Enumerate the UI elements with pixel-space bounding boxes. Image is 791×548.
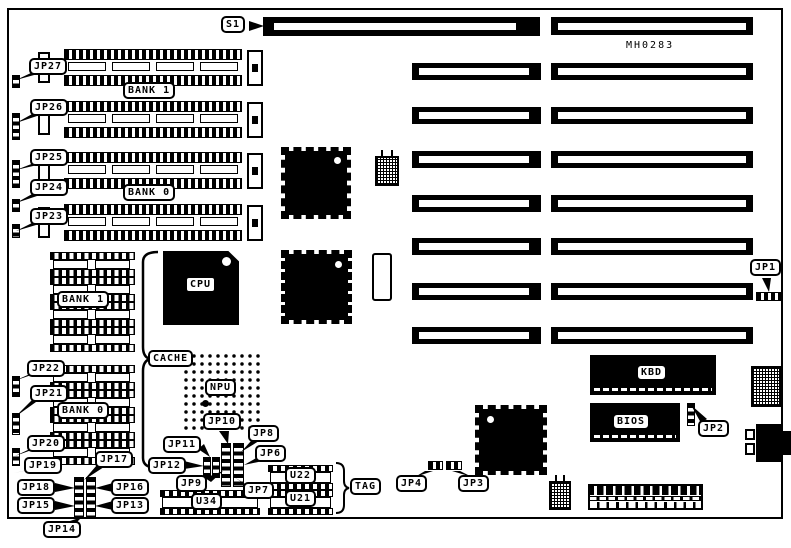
label-jp8: JP8 (248, 425, 279, 442)
label-jp10: JP10 (203, 413, 241, 430)
label-cache: CACHE (148, 350, 193, 367)
label-jp11: JP11 (163, 436, 201, 453)
label-bank1-simm: BANK 1 (123, 82, 175, 99)
label-jp1: JP1 (750, 259, 781, 276)
label-u34: U34 (191, 493, 222, 510)
label-jp9: JP9 (176, 475, 207, 492)
label-jp16: JP16 (111, 479, 149, 496)
label-bank0-simm: BANK 0 (123, 184, 175, 201)
label-npu: NPU (205, 379, 236, 396)
label-u22: U22 (285, 467, 316, 484)
tag-brace (336, 463, 349, 513)
label-jp21: JP21 (30, 385, 68, 402)
label-jp20: JP20 (27, 435, 65, 452)
label-jp2: JP2 (698, 420, 729, 437)
label-jp26: JP26 (30, 99, 68, 116)
label-bank0-cache: BANK 0 (57, 402, 109, 419)
label-cpu: CPU (185, 276, 216, 293)
label-jp14: JP14 (43, 521, 81, 538)
label-tag: TAG (350, 478, 381, 495)
label-u21: U21 (285, 490, 316, 507)
label-jp13: JP13 (111, 497, 149, 514)
label-jp18: JP18 (17, 479, 55, 496)
label-jp12: JP12 (148, 457, 186, 474)
label-bank1-cache: BANK 1 (57, 291, 109, 308)
label-bios: BIOS (612, 413, 650, 430)
motherboard-diagram: MH0283 (0, 0, 791, 548)
label-jp19: JP19 (24, 457, 62, 474)
label-jp17: JP17 (95, 451, 133, 468)
label-s1: S1 (221, 16, 245, 33)
label-jp6: JP6 (255, 445, 286, 462)
label-jp27: JP27 (29, 58, 67, 75)
label-jp22: JP22 (27, 360, 65, 377)
label-kbd: KBD (636, 364, 667, 381)
label-jp4: JP4 (396, 475, 427, 492)
label-jp24: JP24 (30, 179, 68, 196)
label-jp3: JP3 (458, 475, 489, 492)
label-jp23: JP23 (30, 208, 68, 225)
label-jp15: JP15 (17, 497, 55, 514)
label-jp25: JP25 (30, 149, 68, 166)
label-jp7: JP7 (243, 482, 274, 499)
